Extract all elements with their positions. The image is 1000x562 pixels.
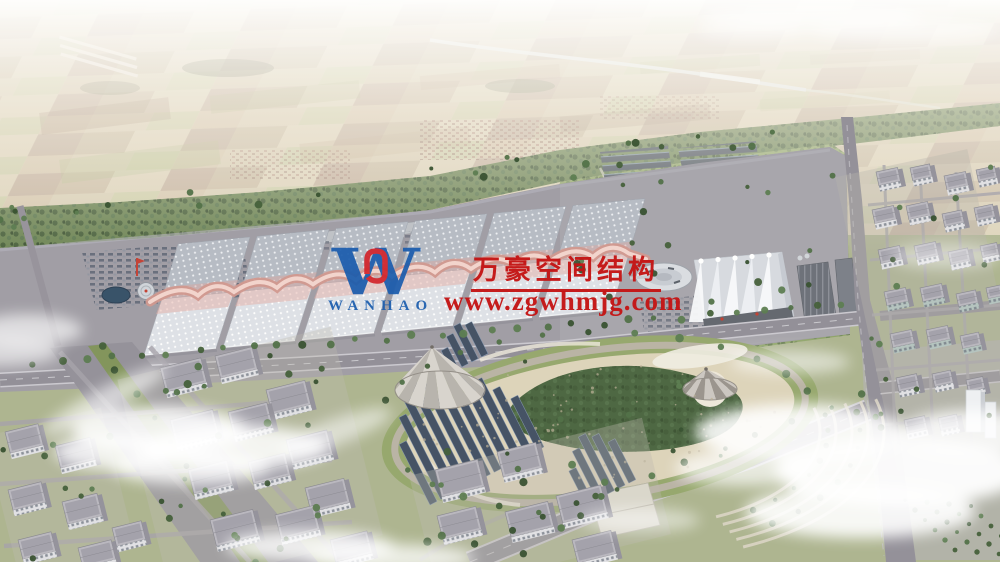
watermark-website: www.zgwhmjg.com bbox=[444, 286, 682, 317]
logo-wordmark: WANHAO bbox=[328, 298, 433, 315]
aerial-rendering: W WANHAO 万豪空间结构 www.zgwhmjg.com bbox=[0, 0, 1000, 562]
